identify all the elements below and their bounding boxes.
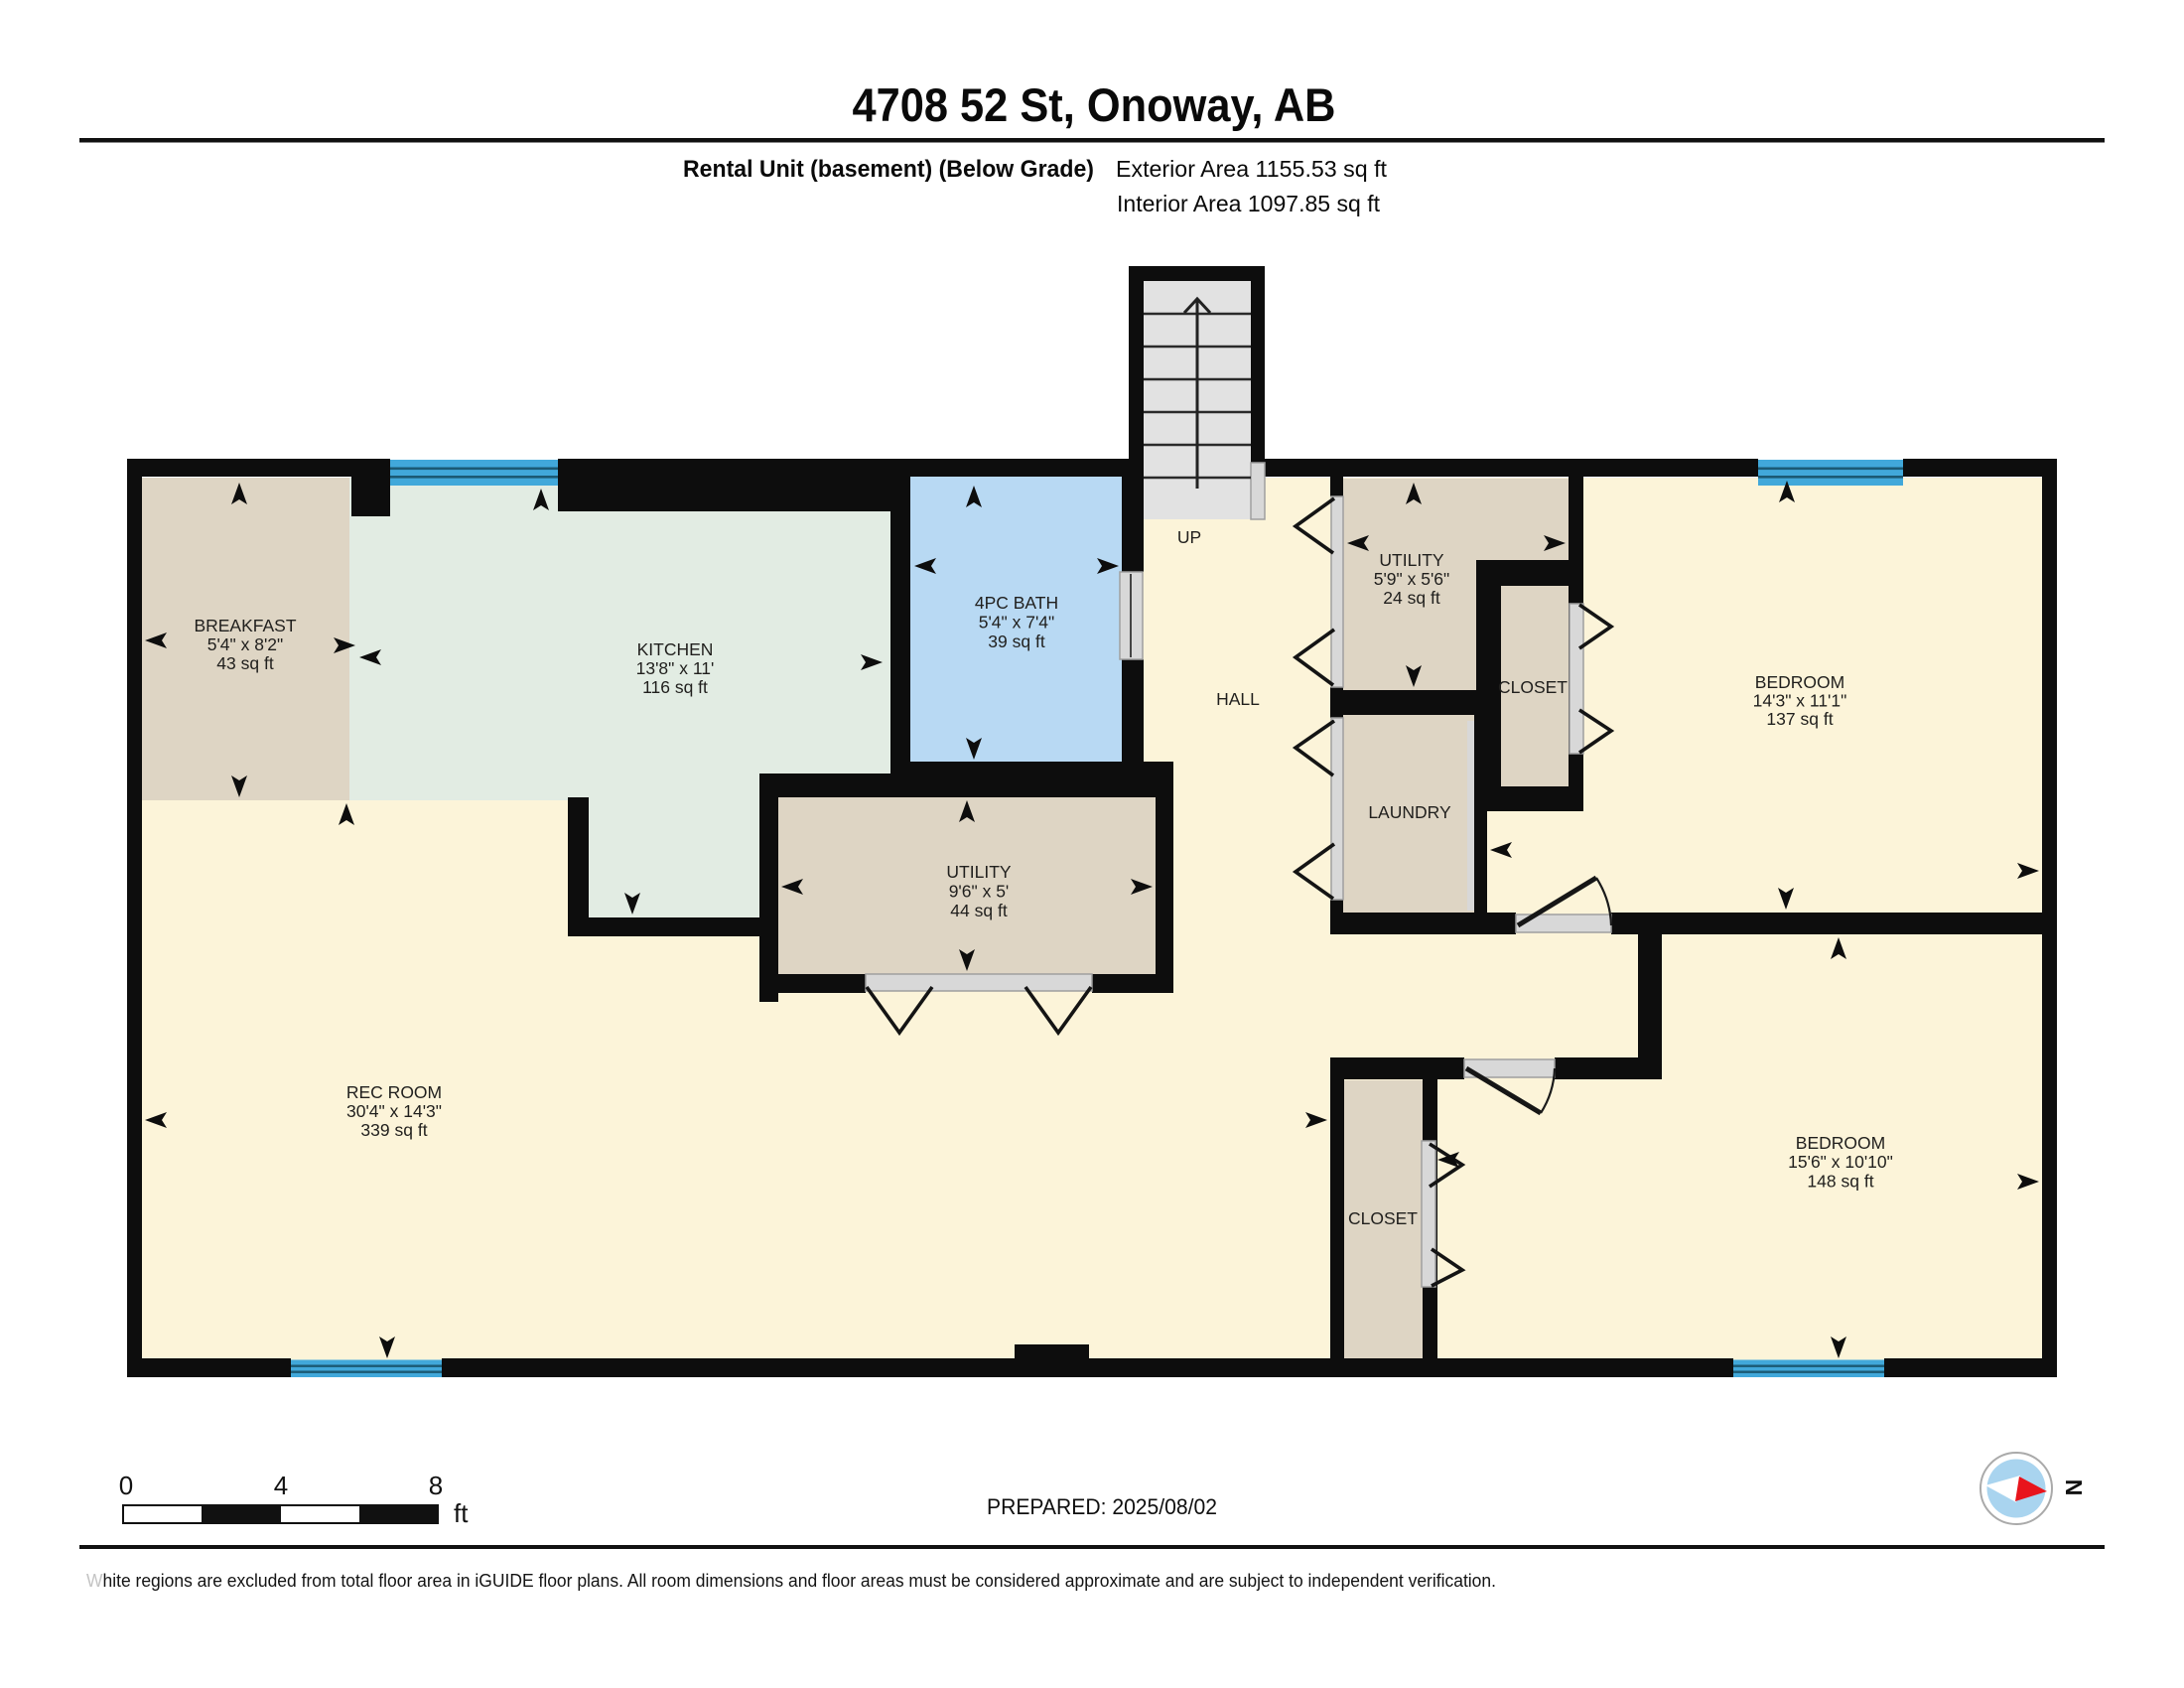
svg-text:5'9" x 5'6": 5'9" x 5'6" xyxy=(1374,569,1450,589)
svg-text:44 sq ft: 44 sq ft xyxy=(950,901,1008,920)
svg-text:15'6" x 10'10": 15'6" x 10'10" xyxy=(1788,1152,1893,1172)
svg-text:White regions are excluded fro: White regions are excluded from total fl… xyxy=(86,1570,1496,1591)
svg-text:43 sq ft: 43 sq ft xyxy=(216,653,274,673)
svg-text:BEDROOM: BEDROOM xyxy=(1796,1133,1885,1153)
svg-text:4708 52 St, Onoway, AB: 4708 52 St, Onoway, AB xyxy=(853,78,1336,131)
svg-text:39 sq ft: 39 sq ft xyxy=(988,632,1045,651)
svg-text:148 sq ft: 148 sq ft xyxy=(1807,1172,1873,1192)
svg-text:24 sq ft: 24 sq ft xyxy=(1383,588,1440,608)
svg-text:5'4" x 7'4": 5'4" x 7'4" xyxy=(979,613,1055,633)
svg-text:KITCHEN: KITCHEN xyxy=(637,639,714,659)
svg-text:4PC BATH: 4PC BATH xyxy=(975,593,1058,613)
svg-text:137 sq ft: 137 sq ft xyxy=(1766,709,1833,729)
svg-text:UP: UP xyxy=(1177,527,1201,547)
svg-text:339 sq ft: 339 sq ft xyxy=(360,1120,427,1140)
svg-text:0: 0 xyxy=(119,1471,133,1500)
svg-text:CLOSET: CLOSET xyxy=(1498,677,1568,697)
svg-text:13'8" x 11': 13'8" x 11' xyxy=(636,658,715,678)
svg-text:LAUNDRY: LAUNDRY xyxy=(1368,802,1451,822)
svg-text:N: N xyxy=(2061,1479,2087,1496)
svg-text:8: 8 xyxy=(429,1471,443,1500)
svg-text:UTILITY: UTILITY xyxy=(946,862,1011,882)
svg-text:BEDROOM: BEDROOM xyxy=(1755,672,1844,692)
svg-text:Interior Area 1097.85 sq ft: Interior Area 1097.85 sq ft xyxy=(1117,191,1381,216)
svg-text:Rental Unit (basement) (Below: Rental Unit (basement) (Below Grade) xyxy=(683,156,1094,183)
svg-text:UTILITY: UTILITY xyxy=(1379,550,1443,570)
svg-text:4: 4 xyxy=(274,1471,288,1500)
svg-text:REC ROOM: REC ROOM xyxy=(346,1082,442,1102)
svg-text:HALL: HALL xyxy=(1216,689,1260,709)
svg-text:BREAKFAST: BREAKFAST xyxy=(194,616,296,635)
svg-text:30'4" x 14'3": 30'4" x 14'3" xyxy=(346,1101,442,1121)
svg-text:ft: ft xyxy=(454,1498,469,1528)
svg-text:Exterior Area 1155.53 sq ft: Exterior Area 1155.53 sq ft xyxy=(1116,156,1388,182)
svg-text:116 sq ft: 116 sq ft xyxy=(642,677,708,697)
svg-text:PREPARED: 2025/08/02: PREPARED: 2025/08/02 xyxy=(987,1494,1217,1519)
svg-text:14'3" x 11'1": 14'3" x 11'1" xyxy=(1753,691,1847,711)
svg-text:5'4" x 8'2": 5'4" x 8'2" xyxy=(207,634,284,654)
svg-text:9'6" x 5': 9'6" x 5' xyxy=(949,882,1010,902)
svg-text:CLOSET: CLOSET xyxy=(1348,1208,1418,1228)
